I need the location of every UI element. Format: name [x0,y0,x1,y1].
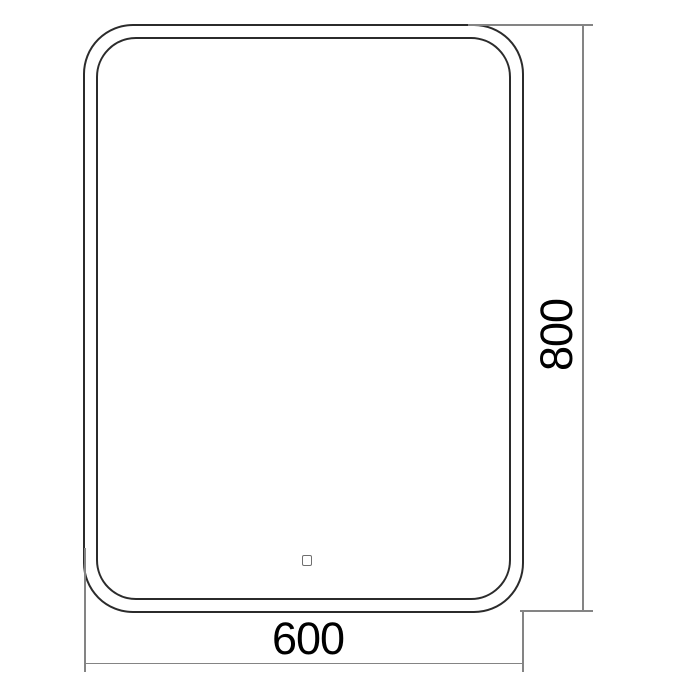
mirror-technical-drawing: 800 600 [0,0,700,677]
height-extension-line-top [468,24,593,26]
width-extension-line-left [84,548,86,672]
height-dimension-label: 800 [534,235,580,435]
touch-sensor-icon [302,555,312,566]
width-dimension-label: 600 [208,616,408,662]
height-dimension-line [582,24,584,612]
mirror-inner-outline [96,37,511,600]
